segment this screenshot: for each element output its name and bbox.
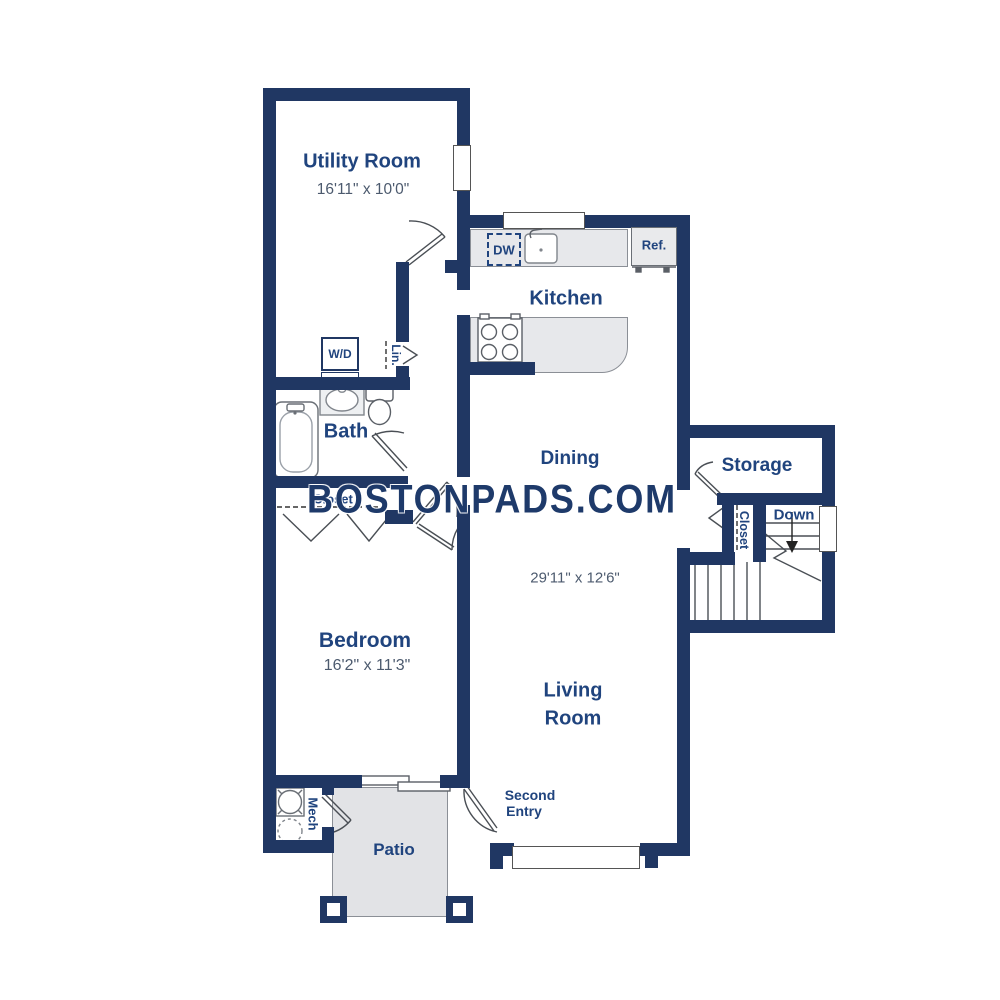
second-entry-label-1: Second [505, 787, 556, 803]
wall-living-bottom-a [490, 843, 514, 856]
kitchen-window [503, 212, 585, 229]
patio-label: Patio [373, 840, 415, 860]
second-entry-door [464, 786, 497, 832]
floor-plan: Utility Room 16'11" x 10'0" Kitchen Bath… [0, 0, 1000, 1000]
patio-slider-door [357, 776, 450, 791]
toilet [366, 386, 393, 425]
linen-door-chevron [403, 346, 417, 364]
water-heater [276, 788, 304, 816]
bath-door [372, 431, 407, 471]
wall-storage-top [690, 425, 835, 438]
wall-right-upper [677, 215, 690, 490]
utility-room-dims: 16'11" x 10'0" [317, 181, 409, 199]
wall-island-bottom [457, 362, 535, 375]
wall-left-outer [263, 88, 276, 853]
wall-storage-bottom [717, 493, 822, 505]
wall-mech-jamb-top [322, 787, 334, 795]
wall-storage-right-a [822, 425, 835, 508]
wall-bedroom-bottom-b [440, 775, 470, 788]
wall-bedroom-right [457, 505, 470, 775]
linen-label: Lin. [389, 344, 403, 365]
living-room-label-2: Room [545, 708, 602, 731]
wall-stair-stub [690, 552, 735, 565]
utility-room-label: Utility Room [303, 151, 421, 174]
dining-label: Dining [540, 448, 599, 470]
stairs-lower-treads [695, 562, 760, 620]
wall-kitchen-left [457, 273, 470, 290]
wall-hallcloset-right [753, 505, 766, 562]
bath-label: Bath [324, 421, 368, 444]
patio-post-right-center [453, 903, 466, 916]
wall-kitchen-top-a [457, 215, 505, 228]
wall-bath-top [263, 377, 410, 390]
dining-dims: 29'11" x 12'6" [530, 570, 620, 587]
wall-stairblock-bottom [677, 620, 835, 633]
wall-hall-left-a [396, 262, 409, 342]
wall-utility-top [263, 88, 470, 101]
mech-label: Mech [306, 797, 321, 830]
dishwasher-label: DW [493, 243, 515, 258]
down-label: Down [774, 507, 815, 524]
kitchen-sink [525, 229, 557, 263]
wall-dining-left [457, 375, 470, 477]
bedroom-dims: 16'2" x 11'3" [324, 657, 411, 675]
wall-mech-bottom [263, 840, 334, 853]
refrigerator-label: Ref. [642, 238, 667, 253]
storage-label: Storage [722, 455, 793, 477]
stairs-window [819, 506, 837, 552]
hall-closet-label: Closet [737, 511, 751, 549]
wall-bedroom-bottom-a [263, 775, 362, 788]
wall-right-lower [677, 548, 690, 855]
patio-post-left-center [327, 903, 340, 916]
utility-door [406, 221, 445, 265]
wall-utility-right-a [457, 101, 470, 147]
second-entry-label-2: Entry [506, 803, 542, 819]
bedroom-label: Bedroom [319, 629, 411, 653]
wall-hallcloset-left [722, 505, 734, 553]
stove [478, 314, 522, 362]
wall-living-se-step [645, 853, 658, 868]
washer-dryer-label: W/D [328, 347, 351, 361]
kitchen-label: Kitchen [529, 288, 602, 311]
bathtub [274, 402, 318, 478]
washer-dryer-tray [321, 372, 359, 378]
living-window [512, 846, 640, 869]
wall-utility-door-jamb [445, 260, 470, 273]
utility-window [453, 145, 471, 191]
refrigerator-base [632, 267, 676, 272]
vestibule-door [417, 524, 458, 550]
storage-door [695, 462, 722, 497]
bostonpads-watermark: BOSTONPADS.COM [307, 478, 677, 523]
living-room-label-1: Living [544, 680, 603, 703]
